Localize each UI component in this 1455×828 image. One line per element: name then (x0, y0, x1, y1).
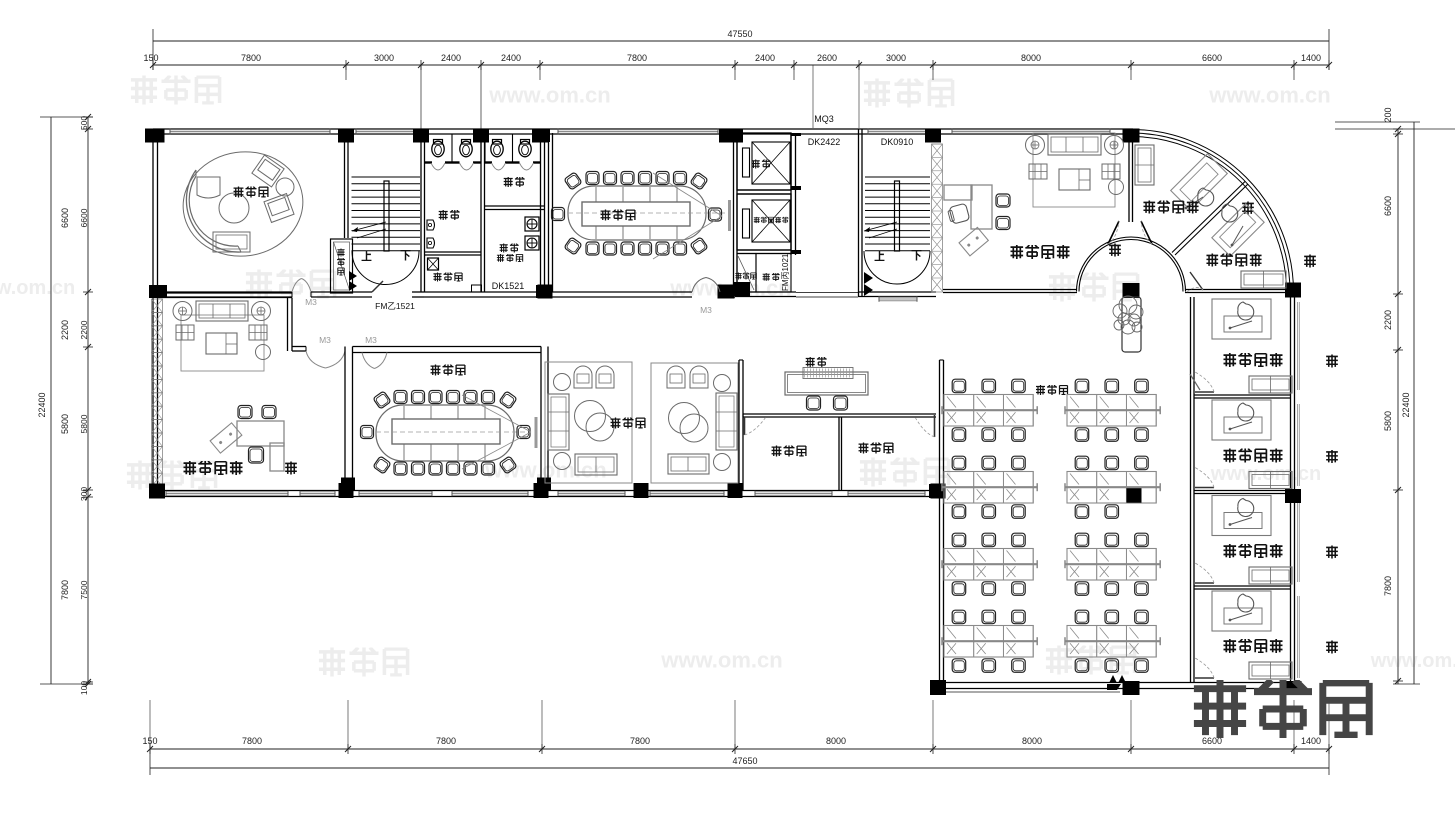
svg-text:2400: 2400 (755, 53, 775, 63)
svg-text:www.om.cn: www.om.cn (1370, 650, 1455, 672)
svg-text:www.om.cn: www.om.cn (488, 83, 610, 108)
svg-text:DK0910: DK0910 (881, 137, 914, 147)
svg-text:22400: 22400 (37, 392, 47, 417)
svg-text:47550: 47550 (727, 29, 752, 39)
svg-text:150: 150 (142, 736, 157, 746)
svg-text:6600: 6600 (79, 208, 89, 227)
svg-text:5800: 5800 (79, 414, 89, 433)
svg-text:3000: 3000 (374, 53, 394, 63)
svg-text:M3: M3 (700, 305, 712, 315)
svg-text:7800: 7800 (241, 53, 261, 63)
svg-text:2200: 2200 (79, 320, 89, 339)
svg-text:7800: 7800 (242, 736, 262, 746)
svg-text:100: 100 (79, 681, 89, 695)
svg-text:7800: 7800 (60, 580, 70, 600)
svg-text:www.om.cn: www.om.cn (1208, 83, 1330, 108)
svg-text:6600: 6600 (60, 208, 70, 228)
svg-text:MQ3: MQ3 (814, 114, 834, 124)
svg-text:500: 500 (79, 116, 89, 130)
svg-text:7800: 7800 (630, 736, 650, 746)
svg-text:www.om.cn: www.om.cn (660, 648, 782, 673)
svg-text:47650: 47650 (732, 756, 757, 766)
svg-text:M3: M3 (305, 297, 317, 307)
svg-text:2400: 2400 (501, 53, 521, 63)
svg-text:DK2422: DK2422 (808, 137, 841, 147)
svg-text:7800: 7800 (436, 736, 456, 746)
svg-text:7500: 7500 (79, 580, 89, 599)
svg-text:7800: 7800 (627, 53, 647, 63)
svg-text:22400: 22400 (1401, 392, 1411, 417)
svg-text:www.om.cn: www.om.cn (0, 277, 75, 299)
svg-text:7800: 7800 (1383, 576, 1393, 596)
svg-text:2600: 2600 (817, 53, 837, 63)
svg-text:2400: 2400 (441, 53, 461, 63)
svg-text:6600: 6600 (1383, 196, 1393, 216)
svg-text:DK1521: DK1521 (492, 281, 525, 291)
svg-text:8000: 8000 (826, 736, 846, 746)
svg-text:150: 150 (143, 53, 158, 63)
svg-text:5800: 5800 (60, 414, 70, 434)
svg-text:8000: 8000 (1021, 53, 1041, 63)
svg-text:FM乙1521: FM乙1521 (375, 301, 415, 311)
svg-text:1400: 1400 (1301, 53, 1321, 63)
svg-text:8000: 8000 (1022, 736, 1042, 746)
svg-text:www.om.cn: www.om.cn (1210, 463, 1321, 485)
svg-text:200: 200 (1383, 107, 1393, 122)
svg-text:6600: 6600 (1202, 53, 1222, 63)
svg-text:1400: 1400 (1301, 736, 1321, 746)
svg-text:2200: 2200 (1383, 310, 1393, 330)
svg-text:M3: M3 (319, 335, 331, 345)
svg-text:3000: 3000 (886, 53, 906, 63)
svg-text:5800: 5800 (1383, 411, 1393, 431)
svg-text:2200: 2200 (60, 320, 70, 340)
svg-text:FM丙1021: FM丙1021 (781, 253, 790, 291)
svg-text:M3: M3 (365, 335, 377, 345)
svg-text:300: 300 (79, 487, 89, 501)
